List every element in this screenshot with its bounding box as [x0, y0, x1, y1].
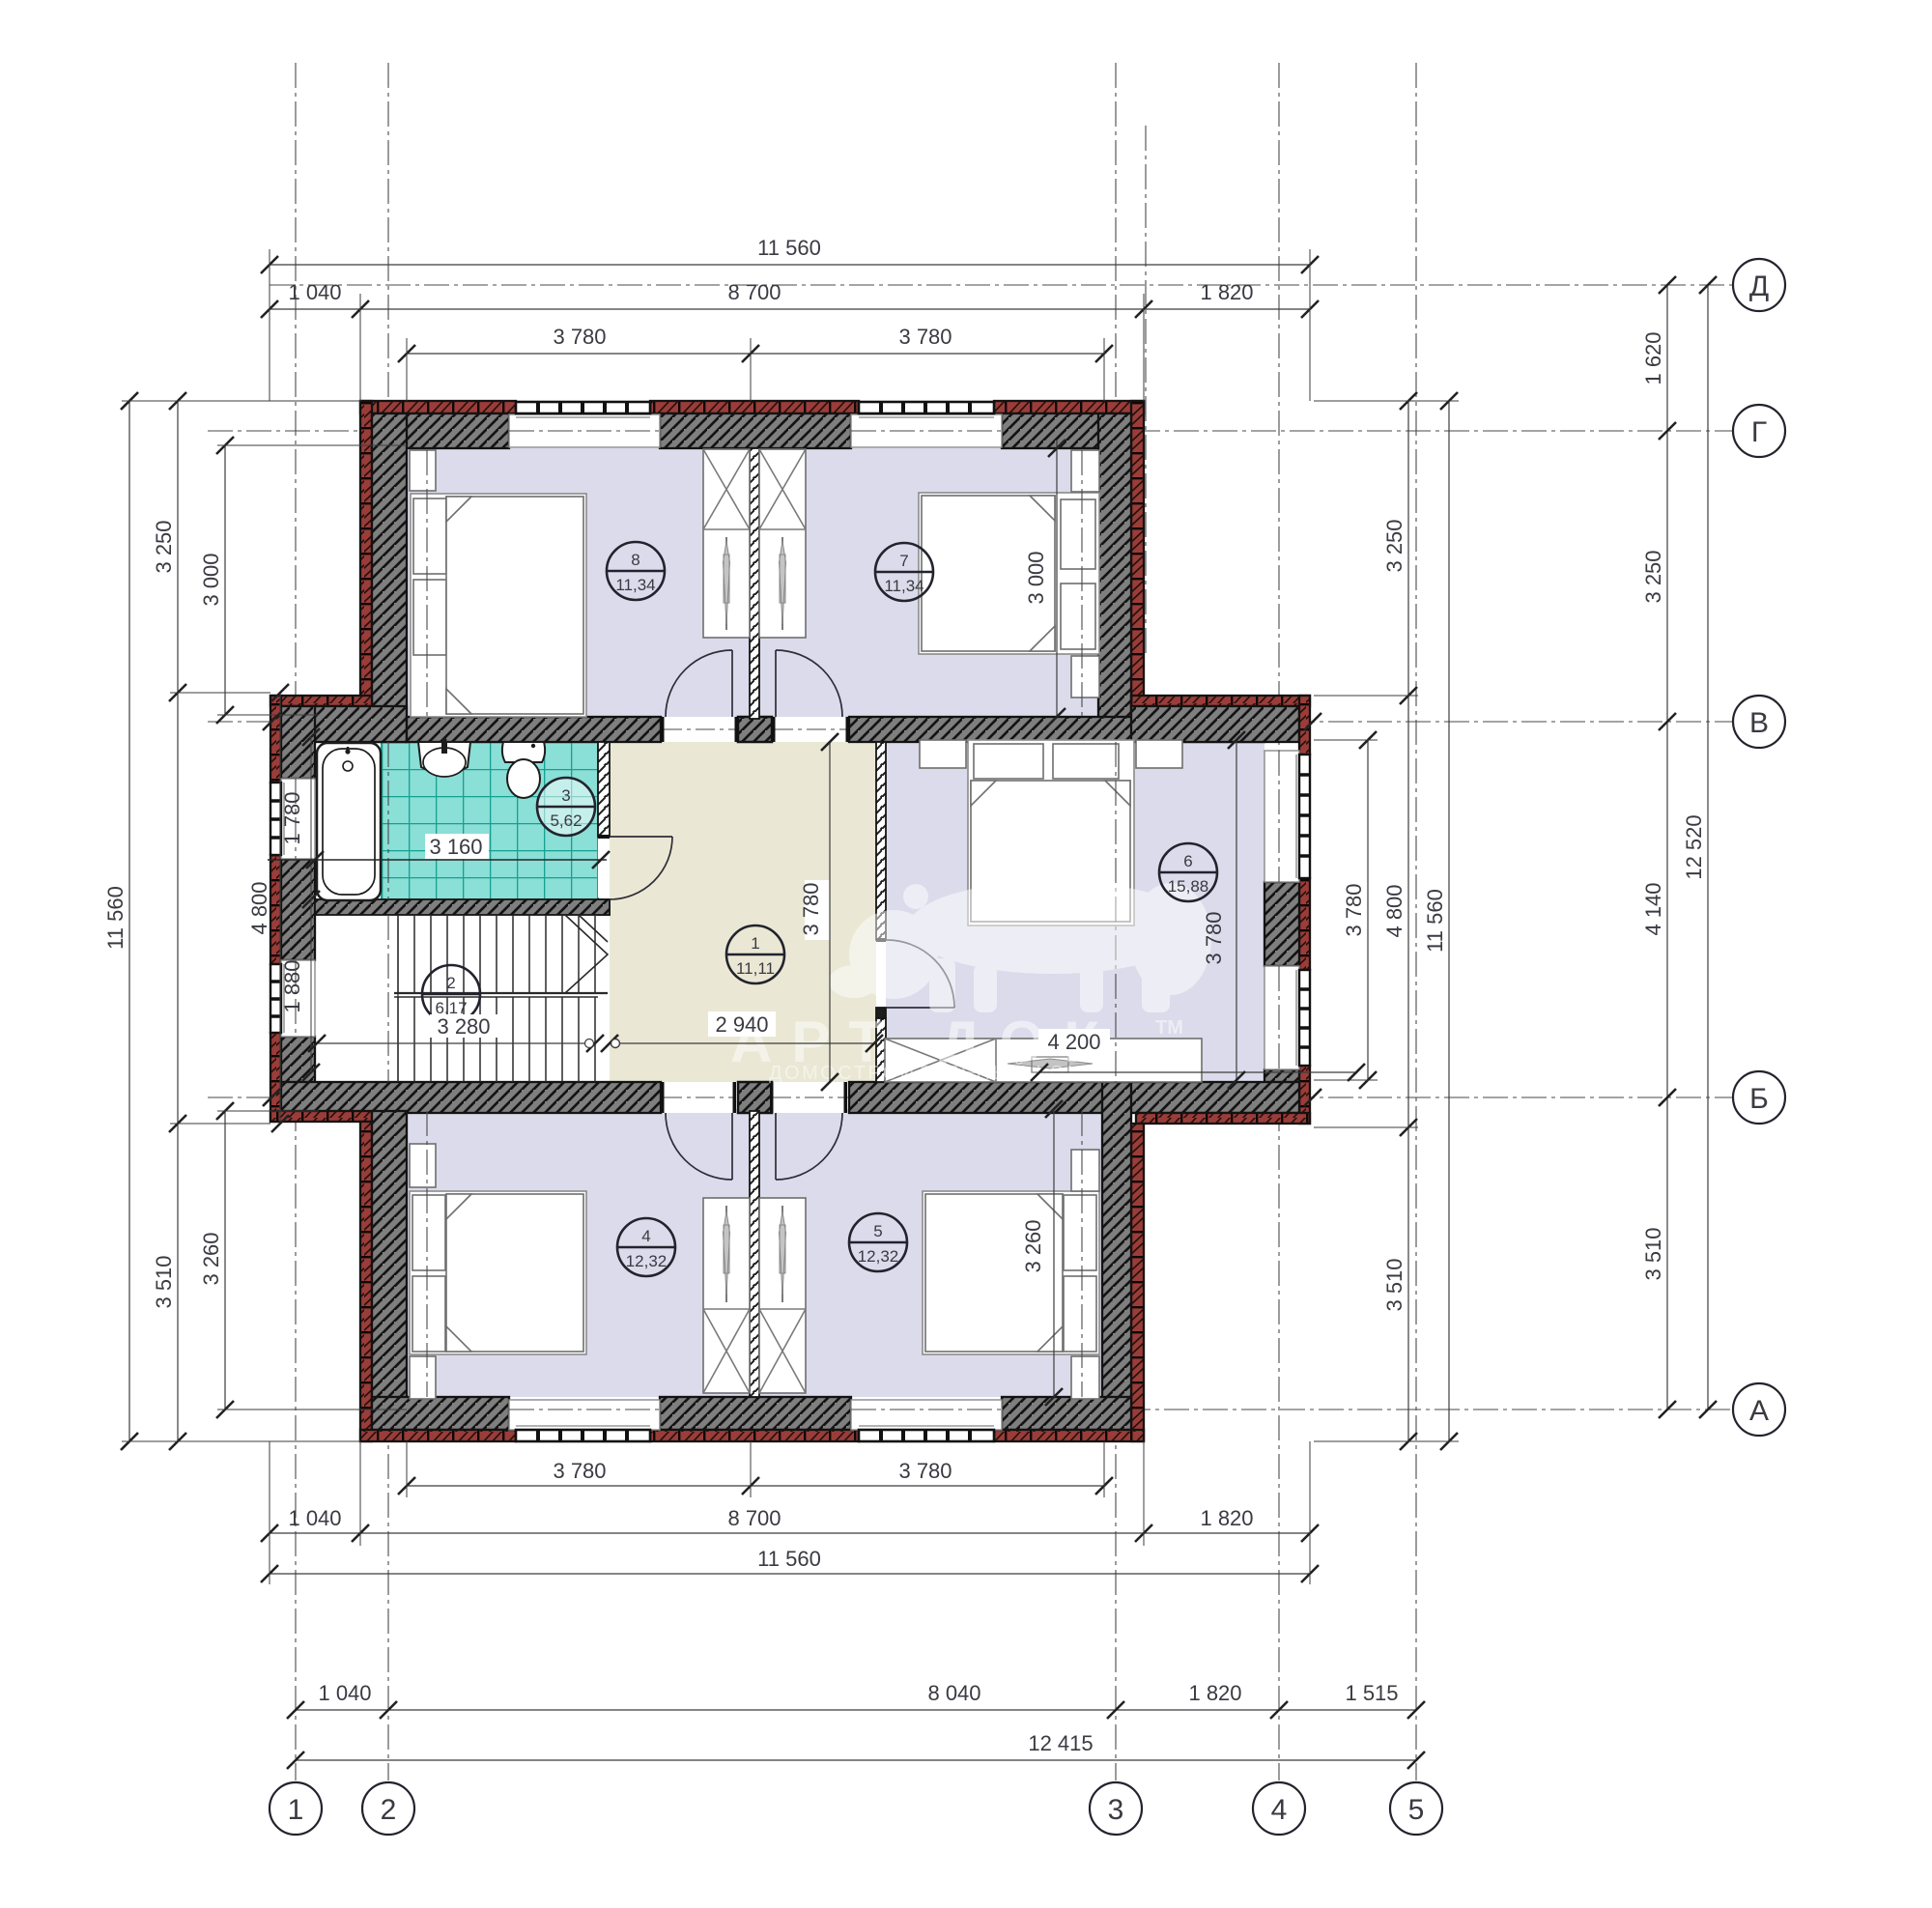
svg-text:5,62: 5,62 — [550, 812, 582, 830]
svg-text:11,34: 11,34 — [615, 576, 655, 594]
svg-text:11 560: 11 560 — [1423, 889, 1447, 953]
svg-text:6: 6 — [1183, 852, 1192, 870]
svg-text:11 560: 11 560 — [757, 1547, 821, 1571]
svg-text:11 560: 11 560 — [103, 886, 128, 950]
svg-text:8 700: 8 700 — [727, 280, 781, 304]
svg-text:11,11: 11,11 — [736, 959, 775, 978]
svg-text:3 000: 3 000 — [1024, 551, 1048, 604]
svg-text:2: 2 — [446, 974, 455, 992]
svg-text:15,88: 15,88 — [1168, 877, 1209, 896]
svg-text:3 780: 3 780 — [898, 1459, 952, 1483]
svg-text:12,32: 12,32 — [626, 1252, 668, 1270]
svg-text:1 880: 1 880 — [280, 959, 304, 1012]
svg-text:3 260: 3 260 — [199, 1232, 223, 1285]
svg-text:1 820: 1 820 — [1200, 1506, 1253, 1530]
svg-text:3 510: 3 510 — [1382, 1258, 1406, 1311]
svg-text:12,32: 12,32 — [858, 1247, 899, 1266]
svg-text:12 520: 12 520 — [1682, 814, 1706, 879]
svg-text:3: 3 — [1108, 1794, 1124, 1826]
svg-text:3: 3 — [561, 786, 570, 805]
svg-text:3 780: 3 780 — [553, 1459, 606, 1483]
svg-text:5: 5 — [873, 1222, 882, 1240]
svg-text:4 800: 4 800 — [1382, 884, 1406, 937]
svg-text:7: 7 — [899, 552, 908, 570]
svg-text:12 415: 12 415 — [1028, 1731, 1093, 1755]
svg-text:3 250: 3 250 — [1641, 550, 1665, 603]
svg-text:А: А — [1749, 1395, 1769, 1427]
svg-text:3 160: 3 160 — [429, 835, 482, 859]
svg-text:3 780: 3 780 — [1202, 911, 1226, 964]
svg-text:8 700: 8 700 — [727, 1506, 781, 1530]
svg-text:3 250: 3 250 — [1382, 519, 1406, 572]
svg-text:3 510: 3 510 — [152, 1255, 176, 1308]
svg-text:Б: Б — [1749, 1083, 1769, 1115]
svg-text:8 040: 8 040 — [927, 1681, 980, 1705]
svg-text:Д: Д — [1749, 271, 1769, 302]
svg-text:1 515: 1 515 — [1345, 1681, 1398, 1705]
svg-text:5: 5 — [1408, 1794, 1425, 1826]
svg-text:4 140: 4 140 — [1641, 882, 1665, 935]
svg-text:8: 8 — [631, 551, 639, 569]
svg-text:1 040: 1 040 — [288, 1506, 341, 1530]
svg-text:3 780: 3 780 — [553, 325, 606, 349]
svg-text:4 800: 4 800 — [247, 881, 271, 934]
svg-text:2 940: 2 940 — [715, 1012, 768, 1037]
svg-text:11 560: 11 560 — [757, 236, 821, 260]
svg-text:3 250: 3 250 — [152, 520, 176, 573]
svg-text:1 620: 1 620 — [1641, 331, 1665, 384]
svg-text:3 780: 3 780 — [799, 882, 823, 935]
svg-text:3 780: 3 780 — [898, 325, 952, 349]
svg-text:Г: Г — [1751, 416, 1767, 448]
svg-text:3 780: 3 780 — [1342, 883, 1366, 936]
svg-text:1 820: 1 820 — [1200, 280, 1253, 304]
svg-text:1 040: 1 040 — [288, 280, 341, 304]
svg-text:3 510: 3 510 — [1641, 1227, 1665, 1280]
svg-text:1 780: 1 780 — [280, 791, 304, 844]
svg-text:В: В — [1749, 707, 1769, 739]
svg-text:3 260: 3 260 — [1021, 1219, 1045, 1272]
svg-text:3 280: 3 280 — [437, 1014, 490, 1039]
svg-text:1: 1 — [751, 934, 759, 953]
svg-text:11,34: 11,34 — [884, 577, 923, 595]
svg-text:1 040: 1 040 — [318, 1681, 371, 1705]
svg-text:ТМ: ТМ — [1155, 1017, 1183, 1039]
svg-text:4 200: 4 200 — [1047, 1030, 1100, 1054]
svg-text:3 000: 3 000 — [199, 553, 223, 606]
svg-text:4: 4 — [1271, 1794, 1288, 1826]
svg-text:1 820: 1 820 — [1188, 1681, 1241, 1705]
svg-text:2: 2 — [381, 1794, 397, 1826]
svg-text:1: 1 — [288, 1794, 304, 1826]
svg-text:4: 4 — [641, 1227, 650, 1245]
